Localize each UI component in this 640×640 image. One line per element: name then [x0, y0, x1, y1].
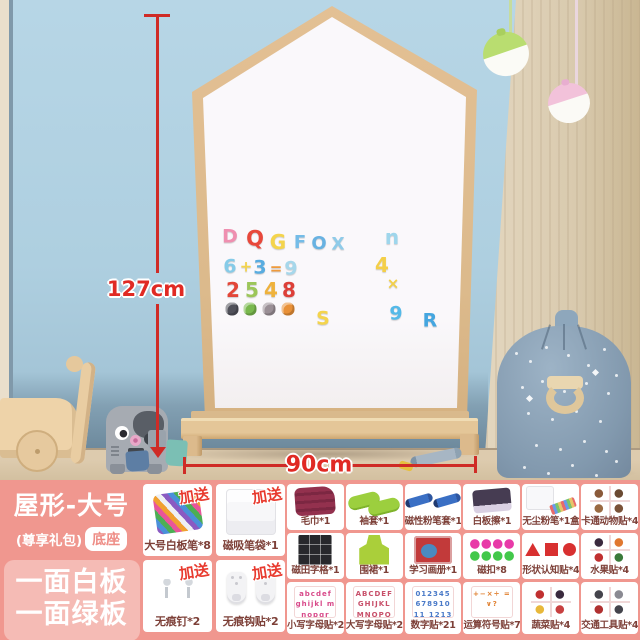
sticker-card-preview: +−×÷ =∨?	[471, 586, 513, 618]
chalk-box-icon	[522, 484, 579, 517]
magnet-character: ×	[387, 277, 400, 292]
eraser-icon	[463, 484, 520, 517]
panda-magnet-icon	[226, 303, 239, 316]
gift-item: 012345 67891011 1213数字贴*21	[405, 582, 462, 634]
dimension-arrow-icon	[150, 447, 166, 458]
gift-item-label: 围裙*1	[346, 566, 403, 579]
frog-magnet-icon	[244, 303, 257, 316]
gift-item: 白板擦*1	[463, 484, 520, 530]
dimension-cap	[474, 456, 477, 473]
magnet-character: 4	[375, 255, 389, 275]
gift-item-label: 毛巾*1	[287, 517, 344, 530]
gift-item: 毛巾*1	[287, 484, 344, 530]
gift-item-label: 大写字母贴*26	[346, 621, 403, 634]
gift-item: 加送大号白板笔*8	[143, 484, 212, 556]
bag-pleat	[563, 324, 565, 350]
bag-handle-loop	[546, 382, 584, 414]
feature-box: 一面白板 一面绿板	[4, 560, 140, 640]
magnet-character: 3	[253, 259, 266, 278]
variant-title: 屋形-大号	[2, 486, 141, 522]
gift-item-label: 磁田字格*1	[287, 566, 344, 579]
gift-item: abcdef ghijkl mnopqr小写字母贴*26	[287, 582, 344, 634]
gift-info-panel: 屋形-大号 (尊享礼包) 底座 一面白板 一面绿板 加送大号白板笔*8加送磁吸笔…	[0, 480, 640, 640]
fruit-stickers-icon	[581, 533, 638, 566]
operator-card-icon: +−×÷ =∨?	[463, 582, 520, 621]
apron-icon	[346, 533, 403, 566]
flower-icon	[130, 435, 141, 446]
gift-item-label: 交通工具贴*4	[581, 621, 638, 634]
gift-item: +−×÷ =∨?运算符号贴*7	[463, 582, 520, 634]
magnet-character: 6	[223, 258, 236, 277]
gift-item-label: 白板擦*1	[463, 517, 520, 530]
magnet-character: +	[240, 260, 253, 275]
gift-item: 蔬菜贴*4	[522, 582, 579, 634]
storage-bag	[497, 310, 631, 478]
picture-book-icon	[405, 533, 462, 566]
gift-item: 无尘粉笔*1盒	[522, 484, 579, 530]
magnets-icon	[463, 533, 520, 566]
star-pattern	[515, 352, 518, 355]
sticker-card-preview: 012345 67891011 1213	[412, 586, 454, 618]
shape-stickers-icon	[522, 533, 579, 566]
easel-tray	[181, 418, 478, 439]
number-card-icon: 012345 67891011 1213	[405, 582, 462, 621]
magnet-character: X	[331, 237, 344, 254]
sticker-card-preview: ABCDEF GHIJKL MNOPQR	[353, 586, 395, 618]
width-dimension-line	[348, 464, 475, 467]
magnet-character: 9	[389, 305, 402, 324]
magnet-character: =	[270, 262, 283, 277]
magnet-character: F	[294, 234, 306, 252]
vehicle-stickers-icon	[581, 582, 638, 621]
uppercase-card-icon: ABCDEF GHIJKL MNOPQR	[346, 582, 403, 621]
magnet-character: n	[385, 227, 399, 247]
towel-icon	[287, 484, 344, 517]
height-label: 127cm	[107, 277, 185, 301]
gift-item-label: 磁性粉笔套*1	[405, 517, 462, 530]
magnet-character: R	[423, 312, 438, 331]
sticker-card-preview: abcdef ghijkl mnopqr	[294, 586, 336, 618]
gift-item-label: 无痕钉*2	[143, 616, 212, 632]
bonus-gift-cells: 加送大号白板笔*8加送磁吸笔袋*1加送无痕钉*2加送无痕钩贴*2	[143, 484, 285, 632]
magnet-character: O	[311, 235, 326, 253]
feature-line: 一面绿板	[4, 599, 140, 631]
product-variant-block: 屋形-大号 (尊享礼包) 底座 一面白板 一面绿板	[2, 486, 141, 640]
gift-item-label: 无痕钩贴*2	[216, 616, 285, 632]
gift-item-label: 数字贴*21	[405, 621, 462, 634]
dimension-cap	[183, 457, 186, 474]
magnet-character: Q	[246, 229, 264, 250]
gift-grid: 毛巾*1袖套*1磁性粉笔套*1白板擦*1无尘粉笔*1盒卡通动物贴*4磁田字格*1…	[287, 484, 638, 634]
gift-item: 磁田字格*1	[287, 533, 344, 579]
gift-item: 学习画册*1	[405, 533, 462, 579]
gift-item: 加送无痕钉*2	[143, 560, 212, 632]
magnet-character: 2	[226, 280, 240, 300]
elephant-eye	[115, 426, 129, 440]
product-photo: DQGFOXn6+3=942548×S9R	[0, 0, 640, 480]
height-dimension-line	[156, 17, 159, 273]
feature-line: 一面白板	[4, 567, 140, 599]
grid-board-icon	[287, 533, 344, 566]
gift-item-label: 水果贴*4	[581, 566, 638, 579]
magnet-character: 8	[282, 280, 296, 300]
gift-item-label: 磁扣*8	[463, 566, 520, 579]
gift-item-label: 形状认知贴*4	[522, 566, 579, 579]
gift-item: 形状认知贴*4	[522, 533, 579, 579]
gift-item-label: 学习画册*1	[405, 566, 462, 579]
magnet-character: S	[316, 310, 330, 329]
gift-item-label: 大号白板笔*8	[143, 540, 212, 556]
gift-item-label: 袖套*1	[346, 517, 403, 530]
lion-magnet-icon	[282, 303, 295, 316]
gift-item: 交通工具贴*4	[581, 582, 638, 634]
magnet-character: 4	[264, 280, 278, 300]
gift-item-label: 无尘粉笔*1盒	[522, 517, 579, 530]
gift-item: ABCDEF GHIJKL MNOPQR大写字母贴*26	[346, 582, 403, 634]
gift-item: 加送无痕钩贴*2	[216, 560, 285, 632]
gift-item-label: 小写字母贴*26	[287, 621, 344, 634]
gift-item: 磁扣*8	[463, 533, 520, 579]
sleeves-icon	[346, 484, 403, 517]
gift-item: 磁性粉笔套*1	[405, 484, 462, 530]
gift-item-label: 蔬菜贴*4	[522, 621, 579, 634]
elephant-foot	[110, 464, 125, 474]
gift-item: 袖套*1	[346, 484, 403, 530]
gift-item: 围裙*1	[346, 533, 403, 579]
width-dimension-line	[186, 464, 290, 467]
lowercase-card-icon: abcdef ghijkl mnopqr	[287, 582, 344, 621]
gift-item-label: 磁吸笔袋*1	[216, 540, 285, 556]
variant-subrow: (尊享礼包) 底座	[2, 527, 141, 551]
gift-item: 加送磁吸笔袋*1	[216, 484, 285, 556]
product-promo-image: DQGFOXn6+3=942548×S9R	[0, 0, 640, 640]
magnet-character: 9	[284, 260, 297, 279]
magnet-character: G	[270, 232, 286, 252]
magnet-character: 5	[245, 280, 259, 300]
gift-item: 水果贴*4	[581, 533, 638, 579]
chalk-holder-icon	[405, 484, 462, 517]
base-badge: 底座	[85, 527, 127, 551]
easel-leg-right	[460, 434, 479, 455]
elephant-slots	[111, 446, 119, 448]
height-dimension-line	[156, 304, 159, 448]
gift-item-label: 卡通动物贴*4	[581, 517, 638, 530]
raccoon-magnet-icon	[263, 303, 276, 316]
animal-stickers-icon	[581, 484, 638, 517]
gift-item-label: 运算符号贴*7	[463, 621, 520, 634]
vegetable-stickers-icon	[522, 582, 579, 621]
dimension-cap	[144, 14, 170, 17]
magnet-character: D	[222, 228, 238, 247]
toy-cup-blue	[125, 450, 149, 472]
width-label: 90cm	[286, 453, 353, 478]
gift-item: 卡通动物贴*4	[581, 484, 638, 530]
gift-pack-label: (尊享礼包)	[16, 529, 82, 549]
